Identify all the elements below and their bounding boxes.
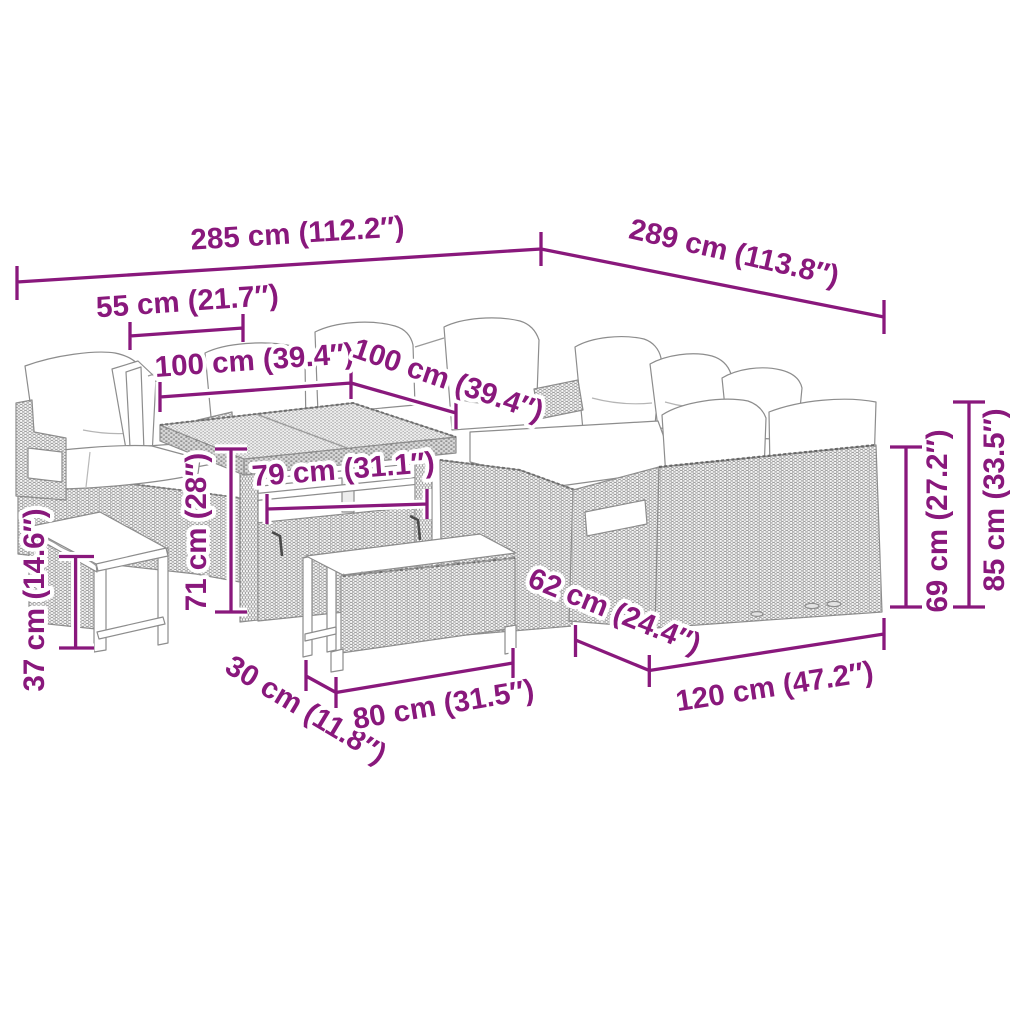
- svg-text:285 cm (112.2″): 285 cm (112.2″): [189, 210, 405, 256]
- svg-text:37 cm (14.6″): 37 cm (14.6″): [18, 508, 51, 691]
- svg-text:69 cm (27.2″): 69 cm (27.2″): [921, 429, 954, 612]
- svg-text:85 cm (33.5″): 85 cm (33.5″): [978, 408, 1011, 591]
- svg-text:289 cm (113.8″): 289 cm (113.8″): [626, 213, 842, 293]
- svg-text:55 cm (21.7″): 55 cm (21.7″): [95, 279, 280, 325]
- svg-text:71 cm (28″): 71 cm (28″): [180, 453, 213, 611]
